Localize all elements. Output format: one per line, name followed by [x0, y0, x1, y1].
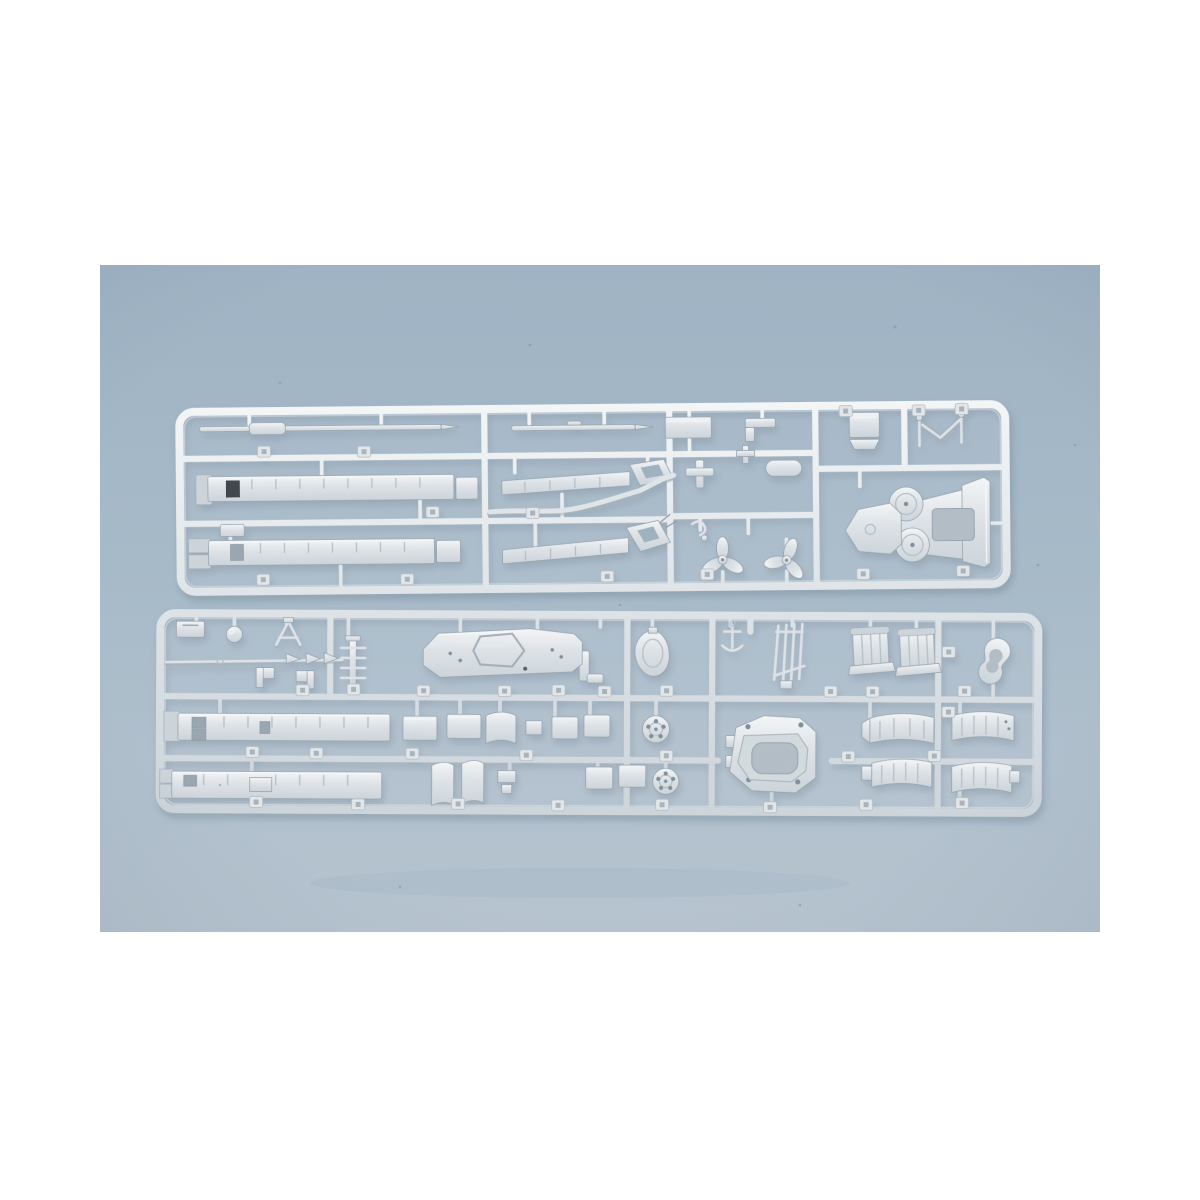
product-photo: [100, 265, 1100, 932]
photo-svg: [100, 265, 1100, 932]
photo-vignette: [100, 265, 1100, 932]
